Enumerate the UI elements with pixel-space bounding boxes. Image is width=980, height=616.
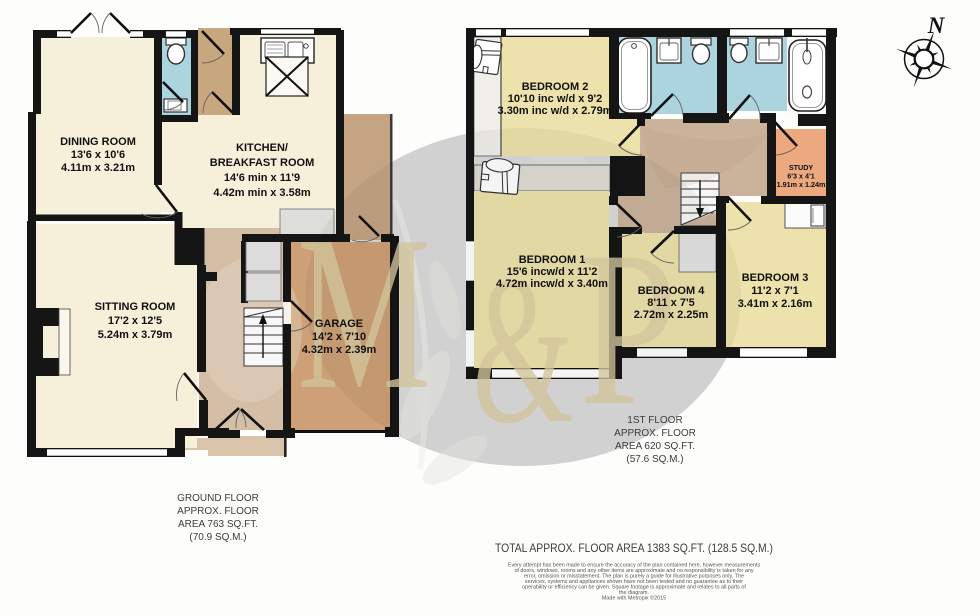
svg-text:14'2 x 7'10: 14'2 x 7'10 <box>312 331 366 343</box>
svg-text:4.42m min x 3.58m: 4.42m min x 3.58m <box>213 187 310 199</box>
svg-text:4.72m incw/d x 3.40m: 4.72m incw/d x 3.40m <box>496 278 608 290</box>
svg-text:BEDROOM 1: BEDROOM 1 <box>519 254 586 266</box>
svg-text:13'6 x 10'6: 13'6 x 10'6 <box>71 149 125 161</box>
svg-text:APPROX. FLOOR: APPROX. FLOOR <box>614 428 696 439</box>
svg-text:4.32m x 2.39m: 4.32m x 2.39m <box>302 344 377 356</box>
svg-text:14'6 min x 11'9: 14'6 min x 11'9 <box>224 172 300 184</box>
svg-text:11'2 x 7'1: 11'2 x 7'1 <box>751 285 798 297</box>
svg-text:(70.9 SQ.M.): (70.9 SQ.M.) <box>189 532 246 543</box>
svg-text:8'11 x 7'5: 8'11 x 7'5 <box>647 297 694 309</box>
svg-text:DINING ROOM: DINING ROOM <box>60 136 136 148</box>
svg-text:1ST FLOOR: 1ST FLOOR <box>627 415 682 426</box>
svg-text:15'6 incw/d x 11'2: 15'6 incw/d x 11'2 <box>507 266 598 278</box>
svg-text:10'10 inc w/d x 9'2: 10'10 inc w/d x 9'2 <box>508 93 603 105</box>
svg-text:2.72m x 2.25m: 2.72m x 2.25m <box>634 309 709 321</box>
svg-text:Made with Metropix ©2015: Made with Metropix ©2015 <box>602 595 666 602</box>
svg-text:3.41m x 2.16m: 3.41m x 2.16m <box>738 298 813 310</box>
svg-text:SITTING ROOM: SITTING ROOM <box>95 301 176 313</box>
svg-text:TOTAL APPROX. FLOOR AREA 1383: TOTAL APPROX. FLOOR AREA 1383 SQ.FT. (12… <box>495 541 773 555</box>
svg-text:M: M <box>297 190 431 435</box>
svg-text:KITCHEN/: KITCHEN/ <box>236 142 288 154</box>
svg-text:BEDROOM 2: BEDROOM 2 <box>522 81 589 93</box>
svg-text:AREA 620 SQ.FT.: AREA 620 SQ.FT. <box>615 441 695 452</box>
svg-text:GARAGE: GARAGE <box>315 318 363 330</box>
svg-text:BREAKFAST ROOM: BREAKFAST ROOM <box>210 157 315 169</box>
svg-text:BEDROOM 4: BEDROOM 4 <box>638 285 706 297</box>
svg-text:5.24m x 3.79m: 5.24m x 3.79m <box>98 329 173 341</box>
svg-text:N: N <box>927 13 946 38</box>
svg-text:APPROX. FLOOR: APPROX. FLOOR <box>177 506 259 517</box>
svg-text:AREA 763 SQ.FT.: AREA 763 SQ.FT. <box>178 519 258 530</box>
svg-text:GROUND FLOOR: GROUND FLOOR <box>177 493 259 504</box>
svg-text:4.11m x 3.21m: 4.11m x 3.21m <box>61 162 135 174</box>
svg-text:1.91m x 1.24m: 1.91m x 1.24m <box>777 180 826 189</box>
svg-text:(57.6 SQ.M.): (57.6 SQ.M.) <box>626 454 683 465</box>
svg-text:BEDROOM 3: BEDROOM 3 <box>742 272 809 284</box>
svg-text:3.30m inc w/d x 2.79m: 3.30m inc w/d x 2.79m <box>498 105 613 117</box>
svg-text:17'2 x 12'5: 17'2 x 12'5 <box>108 315 162 327</box>
